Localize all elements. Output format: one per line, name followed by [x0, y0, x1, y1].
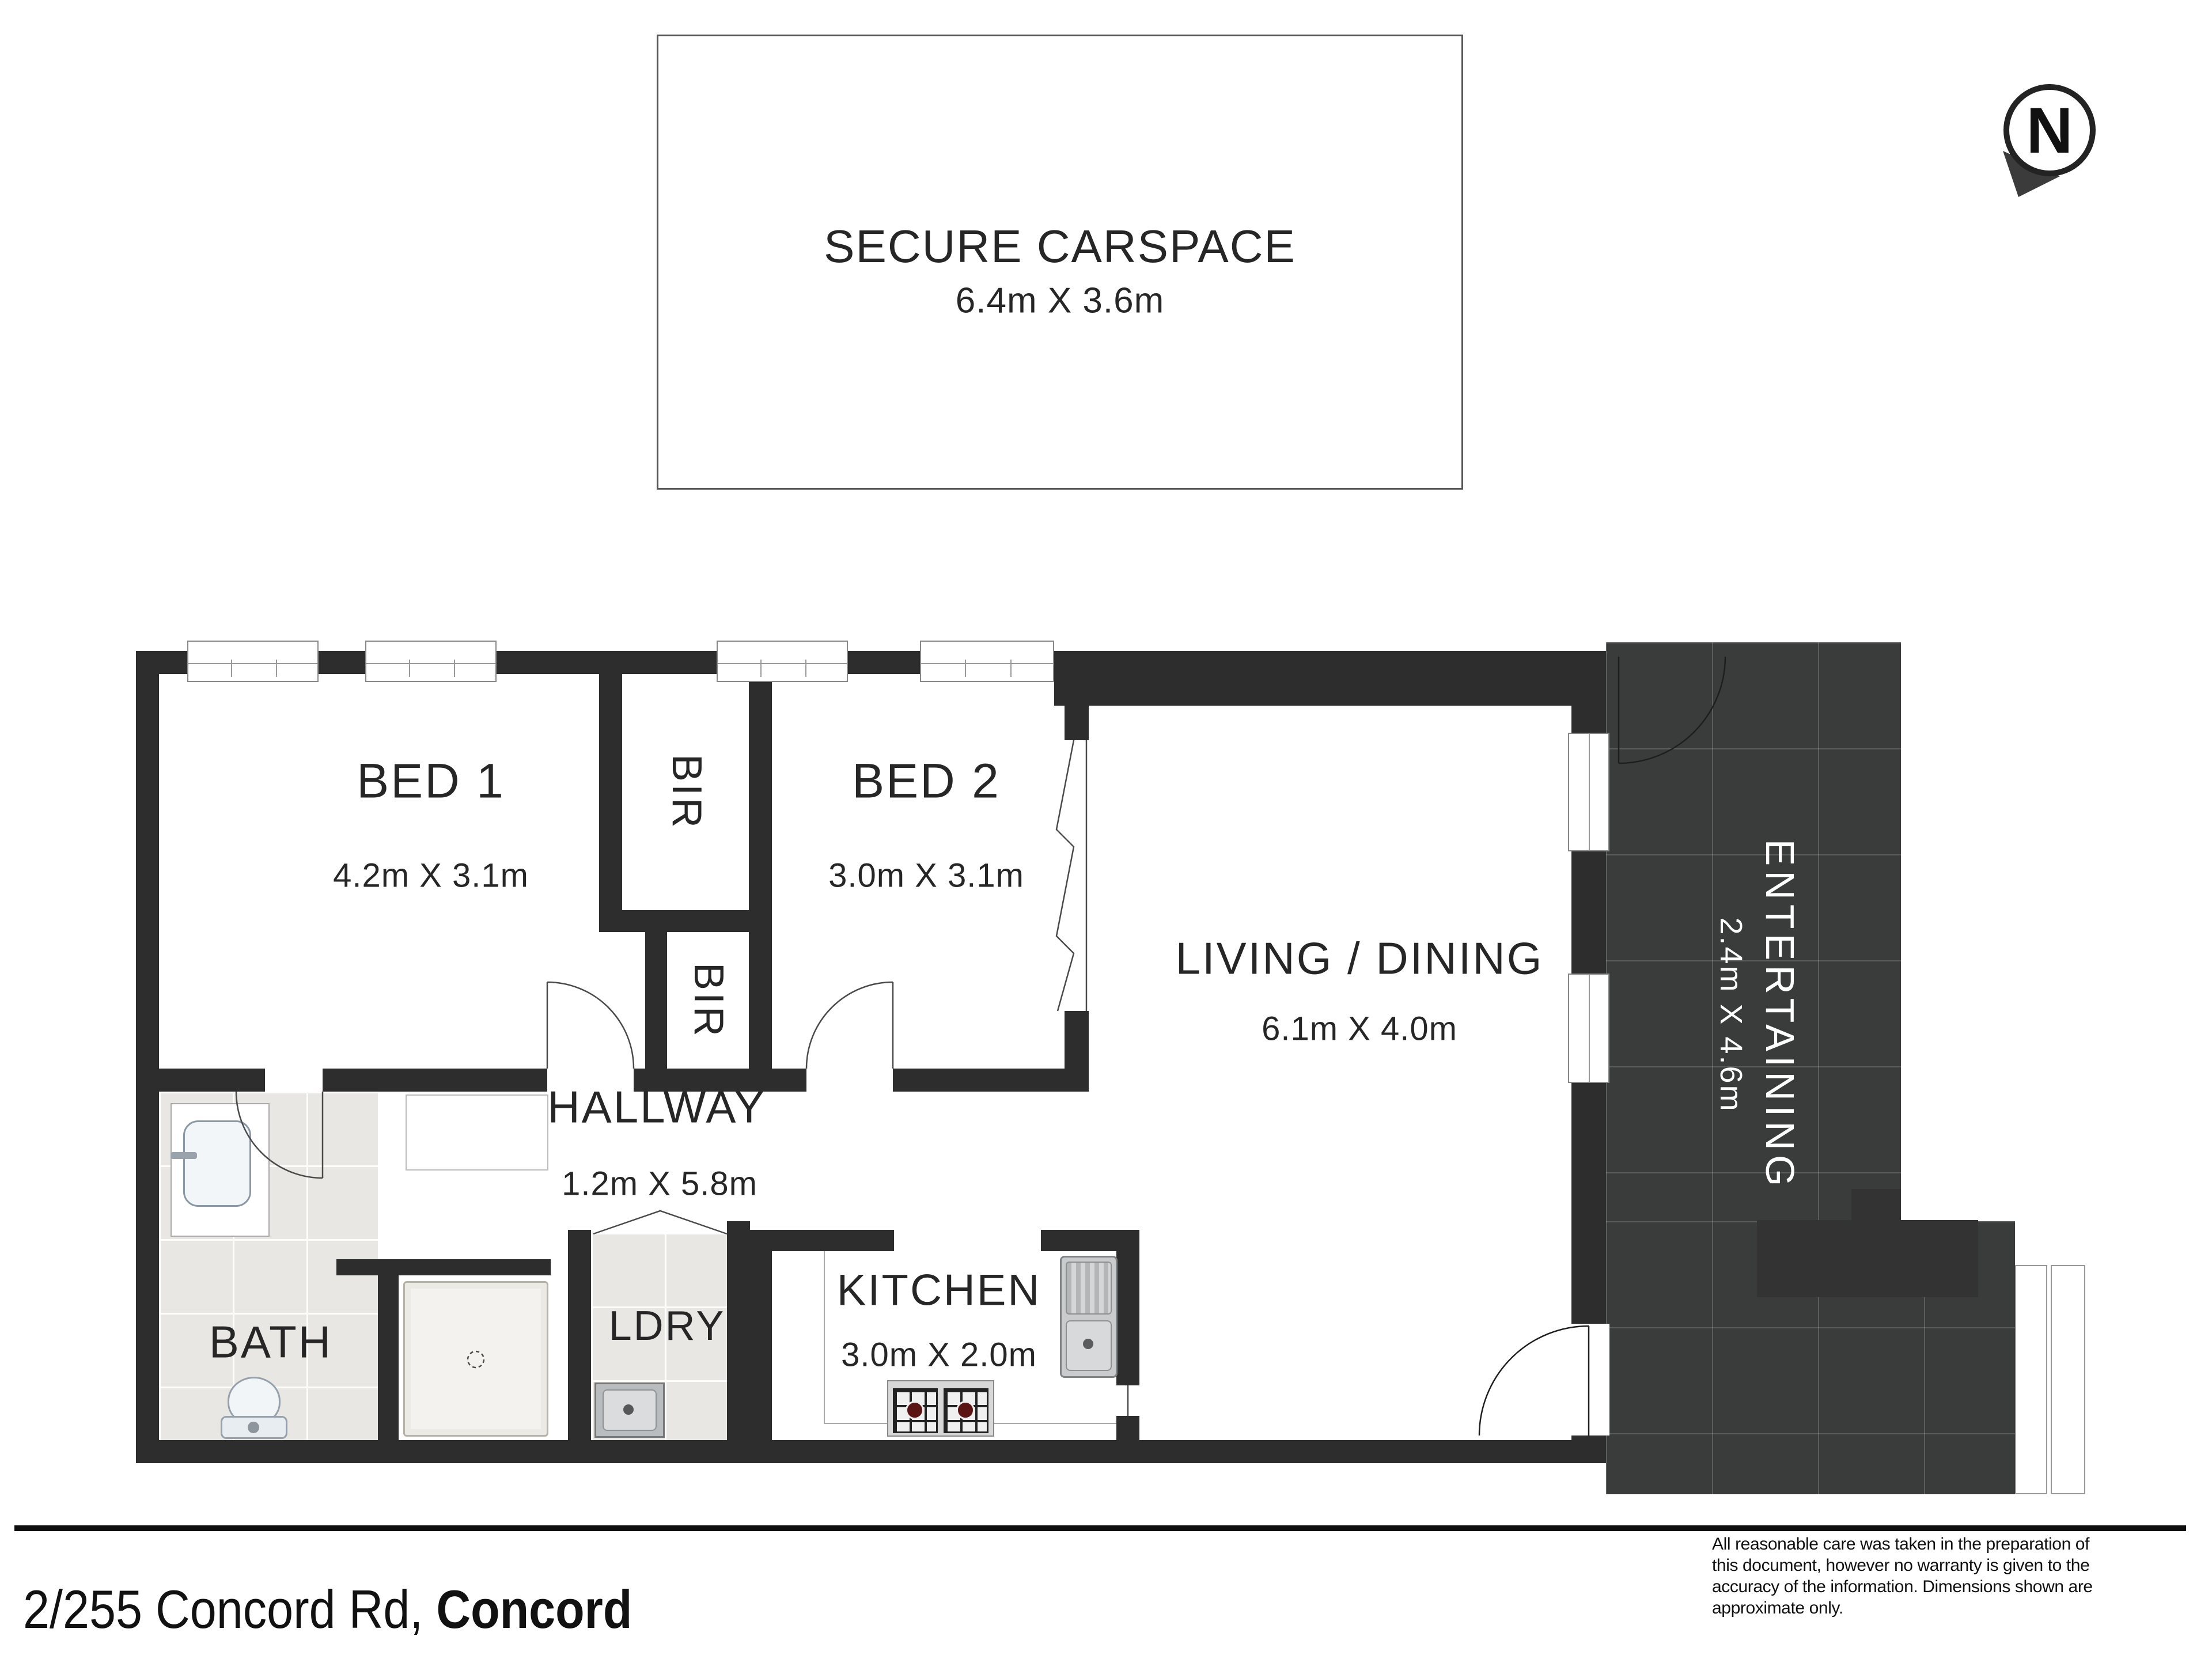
wall-bir1-bottom	[599, 910, 772, 932]
bath-door-opening	[265, 1069, 323, 1092]
shower-tray	[403, 1281, 548, 1437]
bed2-folding-door-opening	[1065, 740, 1089, 1011]
terrace-bench	[1757, 1220, 1978, 1297]
carspace-title: SECURE CARSPACE	[824, 220, 1296, 273]
carspace-dims: 6.4m X 3.6m	[956, 281, 1164, 321]
wall-bed2-right-bottom	[1065, 1011, 1089, 1069]
bed2-window-2	[920, 641, 1054, 682]
north-letter: N	[2027, 93, 2073, 168]
bath-title: BATH	[209, 1316, 332, 1369]
bed1-window-2	[365, 641, 497, 682]
disclaimer-line-4: approximate only.	[1712, 1597, 2093, 1619]
wall-kitchen-right	[1116, 1230, 1139, 1385]
laundry-title: LDRY	[609, 1302, 726, 1350]
north-icon: N	[2003, 84, 2096, 176]
address-street: 2/255 Concord Rd,	[23, 1579, 436, 1639]
kitchen-sink-drainboard	[1066, 1262, 1112, 1315]
living-window-1	[1568, 733, 1609, 851]
entertaining-label-block: ENTERTAINING 2.4m X 4.6m	[1713, 839, 1803, 1191]
wall-bir1-left	[599, 674, 622, 916]
bir1-label: BIR	[663, 754, 710, 830]
living-title: LIVING / DINING	[1176, 933, 1544, 985]
bed1-title: BED 1	[357, 753, 505, 809]
terrace-step-1	[2015, 1265, 2047, 1494]
bed1-window-1	[187, 641, 319, 682]
wall-left	[136, 651, 159, 1463]
wall-shower-top	[336, 1259, 551, 1275]
footer-divider	[14, 1525, 2186, 1531]
address-suburb: Concord	[436, 1579, 632, 1639]
wall-bir2-left	[645, 932, 667, 1069]
bir2-label: BIR	[685, 963, 732, 1039]
disclaimer-line-2: this document, however no warranty is gi…	[1712, 1555, 2093, 1576]
bed2-door-opening	[806, 1069, 893, 1092]
cooktop-burner-left-ring	[906, 1401, 924, 1419]
toilet-button	[248, 1422, 259, 1433]
disclaimer-line-3: accuracy of the information. Dimensions …	[1712, 1576, 2093, 1597]
floorplan-page: { "carspace": { "title": "SECURE CARSPAC…	[0, 0, 2212, 1659]
wall-laundry-right	[727, 1221, 750, 1440]
terrace-door-opening	[1568, 1324, 1609, 1435]
cooktop-burner-right-ring	[956, 1401, 975, 1419]
wall-bed2-left	[749, 674, 772, 1069]
kitchen-title: KITCHEN	[837, 1266, 1041, 1316]
bed2-window-1	[717, 641, 848, 682]
kitchen-sink-drain	[1083, 1339, 1093, 1349]
laundry-tub-drain	[623, 1404, 634, 1415]
hallway-title: HALLWAY	[547, 1081, 766, 1134]
bed2-dims: 3.0m X 3.1m	[828, 857, 1024, 895]
entertaining-title: ENTERTAINING	[1757, 839, 1803, 1191]
wall-laundry-left	[568, 1230, 591, 1440]
bed2-title: BED 2	[852, 753, 1001, 809]
wall-bed2-right-top	[1065, 706, 1089, 740]
wall-bottom	[136, 1440, 1606, 1463]
wall-kitchen-right-stub	[1116, 1416, 1139, 1440]
wall-kitchen-left	[749, 1230, 772, 1440]
wall-top-living	[1054, 651, 1606, 706]
address: 2/255 Concord Rd, Concord	[23, 1578, 632, 1641]
hall-storage	[406, 1094, 548, 1171]
terrace-step-2	[2051, 1265, 2085, 1494]
living-dims: 6.1m X 4.0m	[1262, 1010, 1457, 1048]
bath-basin	[183, 1120, 251, 1207]
disclaimer-line-1: All reasonable care was taken in the pre…	[1712, 1533, 2093, 1555]
living-window-2	[1568, 974, 1609, 1083]
bed1-dims: 4.2m X 3.1m	[333, 857, 529, 895]
wall-bath-right	[378, 1259, 399, 1440]
entertaining-dims: 2.4m X 4.6m	[1713, 839, 1749, 1191]
hallway-dims: 1.2m X 5.8m	[562, 1165, 757, 1203]
disclaimer: All reasonable care was taken in the pre…	[1712, 1533, 2093, 1619]
bath-basin-tap	[171, 1152, 197, 1159]
wall-kitchen-top-a	[749, 1230, 894, 1251]
terrace-bench-step	[1851, 1189, 1901, 1222]
kitchen-dims: 3.0m X 2.0m	[841, 1336, 1037, 1374]
